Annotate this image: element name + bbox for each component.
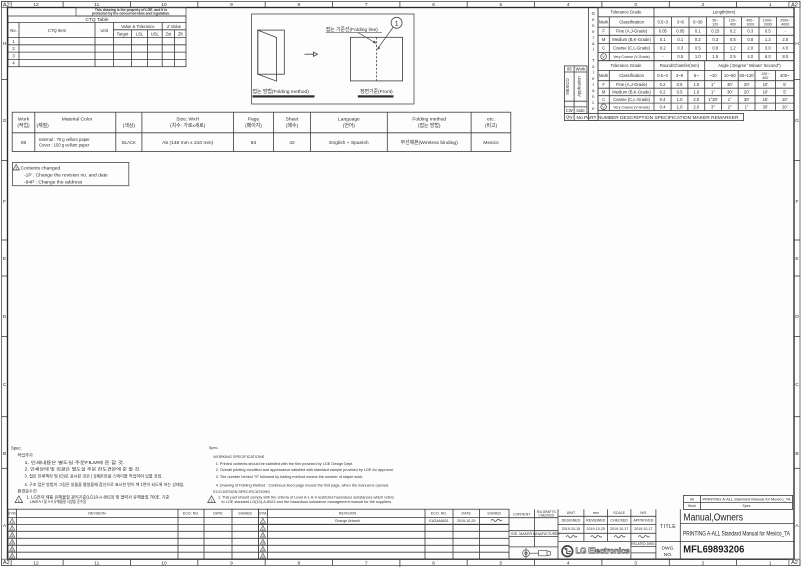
svg-text:0.8: 0.8 (712, 45, 718, 50)
svg-text:84: 84 (251, 140, 257, 146)
svg-text:Work: Work (688, 504, 697, 508)
svg-text:ECO. NO.: ECO. NO. (431, 512, 447, 516)
svg-text:1.0: 1.0 (693, 82, 699, 87)
svg-text:Medium (B,K-Grade): Medium (B,K-Grade) (612, 90, 651, 95)
svg-text:1°: 1° (711, 82, 715, 87)
svg-text:CHECKED: CHECKED (610, 519, 628, 523)
svg-text:10~50: 10~50 (724, 73, 736, 78)
svg-text:C: C (3, 382, 7, 388)
svg-text:MANUFACTURER: MANUFACTURER (533, 532, 560, 536)
svg-text:(재질): (재질) (37, 122, 50, 129)
svg-text:10': 10' (782, 97, 788, 102)
svg-text:Tolerance Grade: Tolerance Grade (611, 10, 643, 15)
svg-text:0.1: 0.1 (677, 37, 683, 42)
svg-text:12: 12 (33, 2, 39, 8)
svg-text:etc.: etc. (487, 117, 495, 123)
svg-text:C: C (795, 382, 799, 388)
svg-text:1.0: 1.0 (677, 104, 683, 109)
svg-text:3. The number behind "S" follo: 3. The number behind "S" followed by fol… (216, 475, 364, 479)
svg-text:H: H (3, 41, 7, 47)
svg-text:5': 5' (783, 82, 786, 87)
svg-text:1°30': 1°30' (708, 97, 718, 102)
svg-text:Classification: Classification (619, 73, 644, 78)
svg-text:Level A-I 및 A-II 유해물질 사양을 준수함: Level A-I 및 A-II 유해물질 사양을 준수함 (30, 498, 86, 505)
svg-text:0.4: 0.4 (660, 104, 666, 109)
svg-text:C: C (602, 97, 605, 102)
svg-text:CW: CW (566, 108, 573, 113)
svg-text:1: 1 (769, 560, 772, 566)
svg-text:LSL: LSL (136, 31, 144, 36)
svg-text:Size: WxH: Size: WxH (176, 117, 199, 123)
svg-text:SCALE: SCALE (613, 511, 625, 515)
svg-text:0.5: 0.5 (677, 90, 683, 95)
svg-text:6~: 6~ (694, 73, 699, 78)
svg-text:CHECKED: CHECKED (538, 514, 554, 518)
svg-text:Coarse (C,L-Grade): Coarse (C,L-Grade) (613, 97, 651, 102)
svg-text:DATE: DATE (213, 512, 223, 516)
svg-text:Very Coarse (V-Grade): Very Coarse (V-Grade) (613, 105, 650, 109)
svg-text:4: 4 (567, 2, 570, 8)
svg-text:0.8: 0.8 (747, 37, 753, 42)
svg-text:2000: 2000 (764, 23, 772, 27)
svg-text:0.5~3: 0.5~3 (657, 20, 668, 25)
svg-text:(접는 방법): (접는 방법) (418, 122, 441, 129)
svg-text:9: 9 (230, 2, 233, 8)
svg-text:0.5: 0.5 (677, 82, 683, 87)
svg-text:Target: Target (117, 31, 129, 36)
svg-text:c: c (592, 100, 594, 105)
svg-text:F: F (3, 199, 6, 205)
svg-text:PRINTING A-ALL Standard Manual: PRINTING A-ALL Standard Manual for Mexic… (683, 530, 791, 537)
svg-text:6.0: 6.0 (765, 54, 771, 59)
svg-text:0.5: 0.5 (695, 45, 701, 50)
svg-text:0.05: 0.05 (659, 29, 668, 34)
svg-text:11: 11 (94, 560, 99, 566)
svg-text:CTQ Item: CTQ Item (48, 28, 67, 33)
svg-text:Spec: Spec (742, 504, 750, 508)
svg-text:400~: 400~ (780, 73, 790, 78)
svg-text:(작업): (작업) (17, 122, 30, 129)
svg-text:G: G (3, 118, 7, 124)
svg-text:M: M (602, 90, 606, 95)
svg-text:3~6: 3~6 (676, 73, 684, 78)
svg-text:Spec.: Spec. (209, 446, 219, 450)
svg-text:Work: Work (576, 66, 587, 71)
svg-text:A2: A2 (3, 2, 10, 8)
svg-text:정면기준(Front): 정면기준(Front) (360, 88, 393, 95)
svg-text:1.0: 1.0 (677, 97, 683, 102)
svg-text:8: 8 (298, 2, 301, 8)
svg-text:42: 42 (289, 140, 295, 146)
svg-text:3. 접은 인쇄책자 및 (O)로 표시된 것은 ( )(제: 3. 접은 인쇄책자 및 (O)로 표시된 것은 ( )(제본만큼 스테이플 작… (25, 472, 163, 479)
svg-text:Medium (B,K-Grade): Medium (B,K-Grade) (612, 37, 651, 42)
svg-text:2019-10-25: 2019-10-25 (587, 527, 605, 531)
svg-text:PRINTING A-ALL Standard Manual: PRINTING A-ALL Standard Manual for Mexic… (703, 498, 792, 502)
svg-text:1. Printed contents should be: 1. Printed contents should be satisfied … (216, 462, 354, 466)
svg-text:4.0: 4.0 (782, 45, 788, 50)
svg-text:Very Coarse (V-Grade): Very Coarse (V-Grade) (613, 55, 650, 59)
svg-text:0.5: 0.5 (765, 29, 771, 34)
svg-text:0.2: 0.2 (695, 37, 701, 42)
svg-text:BLACK: BLACK (122, 140, 136, 145)
svg-text:REVISION: REVISION (339, 512, 357, 516)
svg-text:(매수): (매수) (286, 122, 299, 129)
svg-text:3: 3 (634, 560, 637, 566)
svg-text:3.0: 3.0 (765, 45, 771, 50)
svg-text:1: 1 (15, 166, 17, 170)
svg-text:REVIEWED: REVIEWED (586, 519, 606, 523)
svg-text:Folding method: Folding method (412, 117, 446, 123)
svg-text:M: M (602, 37, 606, 42)
svg-text:12: 12 (33, 560, 39, 566)
svg-text:EAZ4A6831: EAZ4A6831 (429, 519, 448, 523)
svg-text:Material Color: Material Color (62, 117, 93, 123)
svg-text:-1P : Change the revision no.: -1P : Change the revision no. and date (24, 173, 108, 179)
svg-text:mm: mm (593, 511, 599, 515)
svg-text:20': 20' (744, 90, 750, 95)
svg-text:4: 4 (567, 560, 570, 566)
svg-text:0.2: 0.2 (660, 45, 666, 50)
svg-text:10: 10 (161, 560, 167, 566)
svg-text:ECO. NO.: ECO. NO. (183, 512, 199, 516)
svg-text:UNIT: UNIT (567, 511, 576, 515)
svg-text:06: 06 (690, 498, 694, 502)
svg-text:환경준수건: 환경준수건 (18, 487, 37, 494)
svg-text:9: 9 (230, 560, 233, 566)
svg-text:2.5: 2.5 (730, 54, 736, 59)
svg-text:Zst: Zst (165, 31, 172, 36)
svg-text:2. Overall printing condition: 2. Overall printing condition and appear… (216, 468, 394, 472)
svg-text:MFL69893206: MFL69893206 (683, 545, 744, 556)
svg-text:4000: 4000 (781, 23, 789, 27)
svg-text:B: B (3, 451, 6, 457)
svg-text:(색상): (색상) (123, 122, 136, 129)
svg-text:1. 인쇄내용은 별도실 주문FILM에 준 할 것.: 1. 인쇄내용은 별도실 주문FILM에 준 할 것. (25, 459, 125, 466)
svg-text:Page: Page (248, 117, 260, 123)
svg-text:-84P : Change the address: -84P : Change the address (24, 179, 83, 185)
svg-text:A2: A2 (791, 560, 798, 566)
svg-text:Qty: Qty (566, 115, 573, 120)
svg-text:WORKING SPECIFICATIONS: WORKING SPECIFICATIONS (213, 455, 264, 459)
svg-text:N/S: N/S (640, 511, 647, 515)
svg-text:1°: 1° (728, 97, 732, 102)
svg-text:8: 8 (298, 560, 301, 566)
svg-text:G: G (592, 11, 595, 16)
svg-text:0.3: 0.3 (712, 37, 718, 42)
svg-text:3°: 3° (711, 104, 715, 109)
svg-text:Work: Work (18, 117, 30, 123)
svg-text:3~6: 3~6 (677, 20, 685, 25)
svg-text:10': 10' (763, 82, 769, 87)
svg-text:0.1: 0.1 (695, 29, 701, 34)
svg-text:Language: Language (338, 117, 360, 123)
svg-text:20': 20' (782, 104, 788, 109)
svg-text:Mark: Mark (599, 20, 609, 25)
svg-text:ECO-DESIGN SPECIFICATIONS: ECO-DESIGN SPECIFICATIONS (213, 490, 270, 494)
svg-text:Length(mm): Length(mm) (713, 10, 736, 15)
svg-text:15': 15' (763, 97, 769, 102)
svg-text:7: 7 (365, 560, 368, 566)
svg-text:0.15: 0.15 (711, 29, 720, 34)
svg-text:0.3: 0.3 (747, 29, 753, 34)
svg-text:Angle (:Degree° Minute' Second: Angle (:Degree° Minute' Second") (718, 63, 781, 68)
svg-text:1°: 1° (711, 90, 715, 95)
svg-text:120: 120 (712, 23, 718, 27)
svg-text:Manual,Owners: Manual,Owners (684, 512, 744, 523)
svg-text:400: 400 (730, 23, 736, 27)
svg-text:G: G (795, 118, 799, 124)
svg-text:Value & Tolerance: Value & Tolerance (121, 24, 155, 29)
svg-text:SYM.: SYM. (259, 512, 268, 516)
svg-text:F: F (796, 199, 799, 205)
svg-text:1: 1 (395, 20, 399, 27)
svg-text:0.1: 0.1 (660, 37, 666, 42)
svg-text:l: l (593, 70, 594, 75)
svg-text:1000: 1000 (746, 23, 754, 27)
svg-text:C: C (602, 45, 605, 50)
svg-text:Fine (A,J-Grade): Fine (A,J-Grade) (616, 29, 648, 34)
svg-text:0.2: 0.2 (730, 29, 736, 34)
svg-text:REVISION: REVISION (88, 512, 106, 516)
svg-text:Tolerance Grade: Tolerance Grade (611, 63, 643, 68)
svg-text:1: 1 (211, 499, 213, 503)
svg-text:Cover : 150 g vellum paper: Cover : 150 g vellum paper (39, 143, 90, 148)
svg-text:Application: Application (577, 76, 582, 97)
svg-text:접는 방법(Folding method): 접는 방법(Folding method) (253, 88, 310, 95)
svg-text:5': 5' (783, 90, 786, 95)
svg-text:30': 30' (744, 97, 750, 102)
svg-text:protected by the concerned law: protected by the concerned laws and regu… (92, 12, 170, 16)
svg-text:4.0: 4.0 (747, 54, 753, 59)
svg-text:TITLE: TITLE (660, 524, 676, 530)
svg-text:0.2: 0.2 (660, 90, 666, 95)
svg-text:30': 30' (727, 82, 733, 87)
svg-text:1.0: 1.0 (693, 90, 699, 95)
svg-text:Classification: Classification (619, 20, 644, 25)
svg-text:NO.: NO. (664, 552, 673, 558)
svg-text:F: F (602, 29, 605, 34)
svg-text:0.5: 0.5 (730, 37, 736, 42)
svg-text:Mark: Mark (599, 73, 609, 78)
svg-text:D: D (795, 314, 799, 320)
svg-text:6~30: 6~30 (693, 20, 703, 25)
svg-text:Zlt: Zlt (178, 31, 183, 36)
svg-text:2.0: 2.0 (693, 97, 699, 102)
svg-text:No PART NUMBER DESCRIPTION SPE: No PART NUMBER DESCRIPTION SPECIFICATION… (577, 115, 739, 120)
svg-text:0.5~3: 0.5~3 (657, 73, 668, 78)
svg-text:English + Spanish: English + Spanish (329, 140, 369, 146)
svg-text:Spec.: Spec. (11, 446, 22, 451)
svg-text:1.2: 1.2 (765, 37, 771, 42)
svg-text:~10: ~10 (709, 73, 717, 78)
svg-text:l: l (593, 47, 594, 52)
svg-text:CTQ Table: CTQ Table (85, 17, 109, 23)
svg-text:1.0: 1.0 (695, 54, 701, 59)
svg-text:DATE: DATE (462, 512, 472, 516)
svg-text:CONTENT: CONTENT (513, 512, 531, 516)
svg-text:No.: No. (10, 28, 17, 33)
svg-text:Unit: Unit (100, 28, 108, 33)
svg-text:(언어): (언어) (343, 122, 356, 129)
svg-text:2°: 2° (728, 104, 732, 109)
svg-text:30': 30' (727, 90, 733, 95)
svg-text:Z Value: Z Value (167, 24, 182, 29)
svg-text:2019-10-17: 2019-10-17 (610, 527, 628, 531)
svg-text:0.05: 0.05 (676, 29, 685, 34)
svg-text:DESIGNED: DESIGNED (562, 519, 581, 523)
svg-text:무선제본(Wireless binding): 무선제본(Wireless binding) (401, 139, 459, 146)
svg-text:IDE. MAKER: IDE. MAKER (511, 532, 532, 536)
svg-text:Coarse (C,L-Grade): Coarse (C,L-Grade) (613, 45, 651, 50)
svg-text:6: 6 (432, 560, 435, 566)
svg-text:(치수: 가로x세로): (치수: 가로x세로) (170, 122, 206, 129)
svg-text:SYM.: SYM. (8, 512, 17, 516)
svg-text:Side: Side (576, 108, 585, 113)
svg-text:Change Artwork: Change Artwork (335, 519, 361, 523)
svg-text:작업추가: 작업추가 (18, 451, 34, 458)
svg-text:2019-10-17: 2019-10-17 (634, 527, 652, 531)
svg-text:MEXICO: MEXICO (565, 78, 570, 95)
svg-text:(비고): (비고) (485, 122, 498, 129)
svg-text:50~120: 50~120 (740, 73, 755, 78)
svg-text:A5 (148 mm x 210 mm): A5 (148 mm x 210 mm) (162, 140, 213, 146)
svg-text:10': 10' (763, 90, 769, 95)
svg-text:A2: A2 (3, 560, 10, 566)
svg-text:RELATED DWG.: RELATED DWG. (631, 542, 655, 546)
svg-text:1.2: 1.2 (730, 45, 736, 50)
svg-text:0.4: 0.4 (660, 97, 666, 102)
svg-text:F: F (602, 82, 605, 87)
svg-text:5: 5 (500, 2, 503, 8)
svg-text:0.5: 0.5 (677, 54, 683, 59)
svg-text:D: D (3, 314, 7, 320)
svg-text:2.0: 2.0 (693, 104, 699, 109)
svg-text:06: 06 (567, 66, 572, 71)
svg-text:to LGE standard LG(10)-A-8023: to LGE standard LG(10)-A-8023 and the ha… (222, 500, 392, 504)
svg-text:30': 30' (763, 104, 769, 109)
svg-text:H: H (795, 41, 799, 47)
svg-text:B: B (795, 451, 798, 457)
svg-text:2.0: 2.0 (782, 37, 788, 42)
svg-text:7: 7 (365, 2, 368, 8)
svg-text:2. 인쇄상태 및 외관은 별도실 주문 한도견본에 준 할: 2. 인쇄상태 및 외관은 별도실 주문 한도견본에 준 할 것. (25, 466, 141, 473)
svg-text:4. 구조 접은 방법의 그림은 실물을 펼쳤을때 점선으로: 4. 구조 접은 방법의 그림은 실물을 펼쳤을때 점선으로 표시한 면이 책 … (25, 481, 185, 488)
svg-text:APPROVED: APPROVED (633, 519, 653, 523)
svg-text:DWG.: DWG. (661, 545, 674, 551)
svg-text:Internal : 70 g vellum paper: Internal : 70 g vellum paper (39, 137, 90, 142)
svg-text:Sheet: Sheet (286, 117, 299, 123)
svg-text:1: 1 (18, 499, 20, 503)
svg-text:SIGNED: SIGNED (487, 512, 501, 516)
svg-text:2: 2 (702, 560, 705, 566)
svg-text:Mexico: Mexico (483, 140, 499, 146)
svg-text:2019-10-15: 2019-10-15 (562, 527, 580, 531)
svg-text:Contents changed: Contents changed (21, 165, 61, 171)
svg-text:1°: 1° (745, 104, 749, 109)
svg-text:(페이지): (페이지) (245, 122, 262, 129)
svg-text:0.2: 0.2 (660, 82, 666, 87)
svg-text:4. Drawing of Folding Method :: 4. Drawing of Folding Method : Continous… (216, 484, 390, 488)
svg-text:LG Electronics: LG Electronics (576, 546, 630, 556)
svg-text:0.3: 0.3 (677, 45, 683, 50)
svg-text:Fine (A,J-Grade): Fine (A,J-Grade) (616, 82, 648, 87)
svg-text:06: 06 (21, 140, 27, 146)
svg-text:5: 5 (500, 560, 503, 566)
svg-text:USL: USL (151, 31, 160, 36)
svg-text:2.0: 2.0 (747, 45, 753, 50)
svg-text:접는 기준선(Folding line): 접는 기준선(Folding line) (326, 26, 378, 33)
svg-text:SIGNED: SIGNED (238, 512, 252, 516)
svg-text:20': 20' (744, 82, 750, 87)
svg-text:6: 6 (432, 2, 435, 8)
svg-text:400: 400 (762, 76, 768, 80)
svg-text:T: T (592, 58, 595, 63)
svg-text:8.0: 8.0 (782, 54, 788, 59)
svg-text:2019-10-29: 2019-10-29 (457, 519, 475, 523)
svg-text:1.5: 1.5 (712, 54, 718, 59)
svg-text:Round/Chamfer(mm): Round/Chamfer(mm) (660, 63, 700, 68)
